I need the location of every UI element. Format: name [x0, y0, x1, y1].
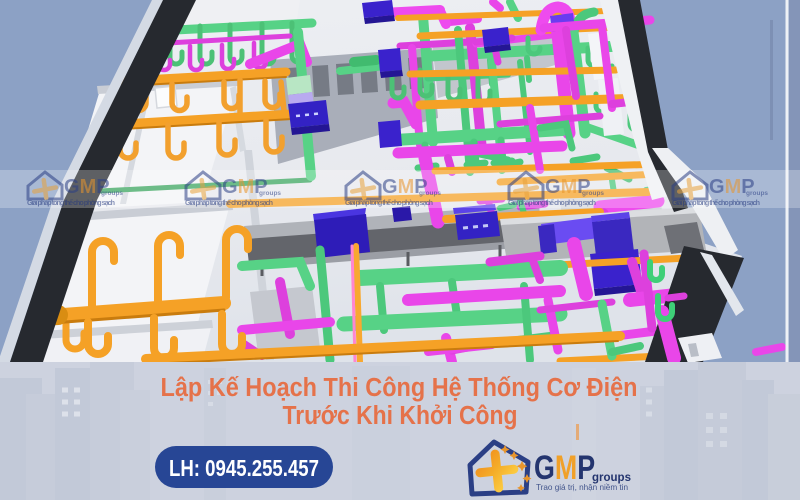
svg-text:Trước Khi Khởi Công: Trước Khi Khởi Công	[283, 402, 518, 430]
svg-text:Trao giá trị, nhận niềm tin: Trao giá trị, nhận niềm tin	[536, 483, 628, 492]
svg-text:LH: 0945.255.457: LH: 0945.255.457	[169, 455, 319, 481]
svg-text:GMP: GMP	[534, 449, 595, 487]
svg-text:Lập Kế Hoạch Thi Công Hệ Thống: Lập Kế Hoạch Thi Công Hệ Thống Cơ Điện	[161, 374, 638, 402]
